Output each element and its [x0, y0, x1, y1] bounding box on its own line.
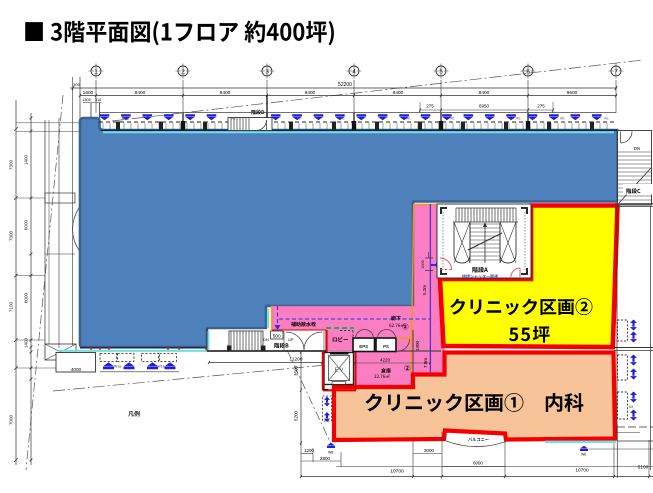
svg-text:8400: 8400	[220, 90, 231, 96]
svg-text:DN: DN	[263, 337, 269, 342]
svg-text:300: 300	[73, 82, 80, 87]
svg-text:2: 2	[181, 68, 185, 75]
svg-text:7.0m: 7.0m	[423, 358, 428, 368]
svg-text:W6: W6	[581, 453, 586, 457]
svg-text:W6: W6	[328, 451, 333, 455]
svg-text:4000: 4000	[71, 367, 82, 372]
svg-text:7300: 7300	[9, 230, 14, 241]
svg-text:275: 275	[426, 104, 434, 109]
svg-text:W1: W1	[450, 117, 455, 121]
svg-text:1000: 1000	[421, 260, 425, 268]
svg-text:7: 7	[614, 68, 618, 75]
svg-text:E·V: E·V	[335, 368, 344, 374]
svg-text:1: 1	[94, 68, 98, 75]
svg-text:W1: W1	[516, 117, 521, 121]
svg-text:6950: 6950	[479, 104, 490, 109]
svg-text:8400: 8400	[135, 90, 146, 96]
svg-text:7100: 7100	[9, 301, 14, 312]
svg-text:10700: 10700	[390, 469, 404, 475]
svg-text:1600: 1600	[83, 90, 94, 96]
svg-text:3000: 3000	[424, 448, 434, 453]
svg-text:9600: 9600	[567, 90, 578, 96]
svg-text:1400: 1400	[24, 337, 29, 348]
svg-text:UP: UP	[288, 337, 294, 342]
svg-text:W1: W1	[604, 117, 609, 121]
svg-text:PS: PS	[383, 344, 389, 349]
svg-text:DN: DN	[634, 146, 640, 151]
svg-text:2800: 2800	[320, 456, 330, 461]
svg-text:5.2m: 5.2m	[422, 285, 427, 295]
svg-text:5: 5	[439, 68, 443, 75]
svg-text:W1: W1	[406, 117, 411, 121]
svg-text:W1: W1	[231, 117, 236, 121]
svg-text:5100: 5100	[638, 465, 649, 471]
svg-text:4220: 4220	[380, 358, 391, 363]
svg-text:3500: 3500	[294, 365, 299, 376]
svg-text:1400: 1400	[24, 154, 29, 165]
svg-text:W1a: W1a	[158, 365, 165, 369]
svg-text:500: 500	[273, 333, 281, 339]
svg-text:11200: 11200	[290, 357, 303, 363]
svg-text:6000: 6000	[24, 219, 29, 230]
svg-text:8400: 8400	[479, 90, 490, 96]
svg-text:N3: N3	[629, 405, 633, 409]
svg-text:8400: 8400	[305, 90, 316, 96]
svg-text:7300: 7300	[9, 159, 14, 170]
svg-text:7000: 7000	[9, 414, 14, 425]
svg-text:3: 3	[265, 68, 269, 75]
svg-text:1200: 1200	[304, 448, 314, 453]
svg-text:275: 275	[537, 104, 545, 109]
svg-text:8400: 8400	[393, 90, 404, 96]
svg-text:W1: W1	[340, 117, 345, 121]
svg-text:1305: 1305	[82, 98, 90, 102]
svg-text:4: 4	[352, 68, 356, 75]
svg-text:W1a: W1a	[114, 365, 121, 369]
svg-text:310: 310	[95, 98, 101, 102]
svg-text:52200: 52200	[338, 82, 352, 88]
svg-text:6000: 6000	[473, 461, 483, 466]
svg-text:6: 6	[526, 68, 530, 75]
svg-text:EPS: EPS	[359, 344, 368, 349]
svg-text:10700: 10700	[575, 468, 589, 474]
svg-text:W1: W1	[122, 117, 127, 121]
svg-text:W1: W1	[296, 117, 301, 121]
svg-text:1300: 1300	[415, 340, 420, 351]
svg-text:5200: 5200	[294, 410, 299, 421]
svg-text:6000: 6000	[24, 292, 29, 303]
svg-text:W1: W1	[560, 117, 565, 121]
